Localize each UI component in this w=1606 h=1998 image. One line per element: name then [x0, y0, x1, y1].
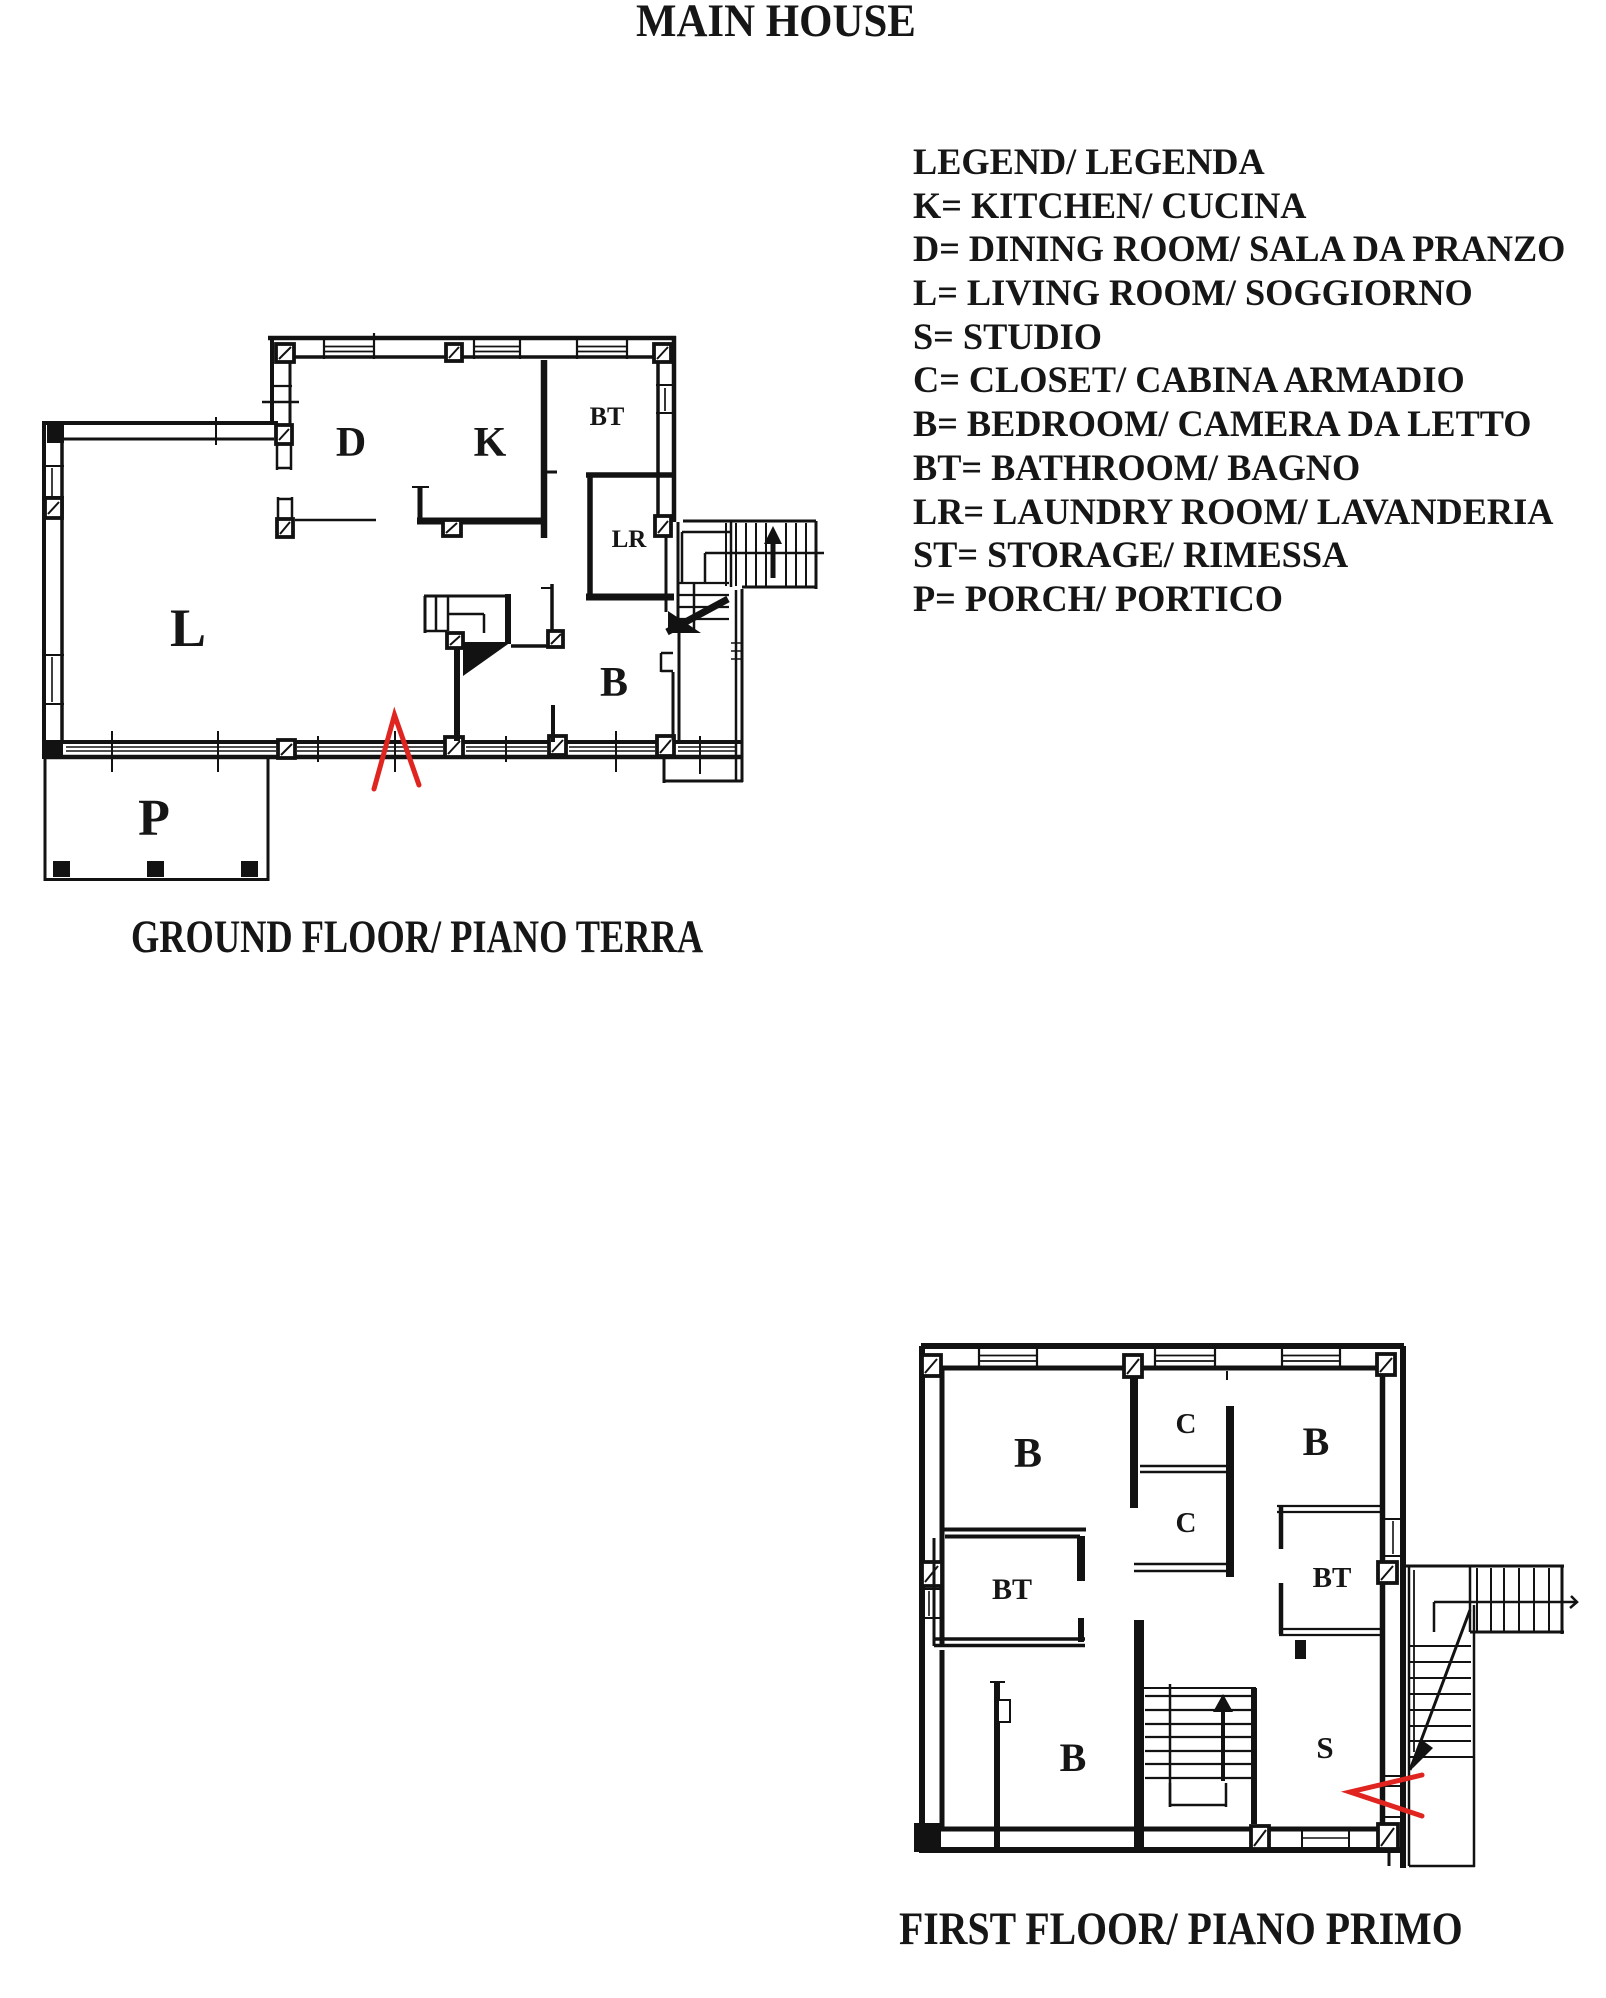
svg-text:D: D — [336, 420, 366, 466]
svg-text:B: B — [600, 660, 628, 706]
svg-text:BT: BT — [1313, 1562, 1352, 1594]
svg-text:L: L — [170, 598, 206, 658]
svg-text:P: P — [138, 790, 170, 847]
svg-text:S: S — [1316, 1730, 1333, 1765]
svg-text:C: C — [1176, 1507, 1197, 1539]
svg-text:C: C — [1176, 1408, 1197, 1440]
svg-text:B: B — [1060, 1735, 1087, 1780]
svg-text:B: B — [1303, 1419, 1330, 1464]
svg-text:LR: LR — [612, 526, 648, 553]
svg-text:K: K — [474, 420, 507, 466]
svg-text:B: B — [1014, 1431, 1042, 1477]
svg-text:BT: BT — [992, 1573, 1032, 1606]
svg-text:BT: BT — [590, 402, 625, 431]
